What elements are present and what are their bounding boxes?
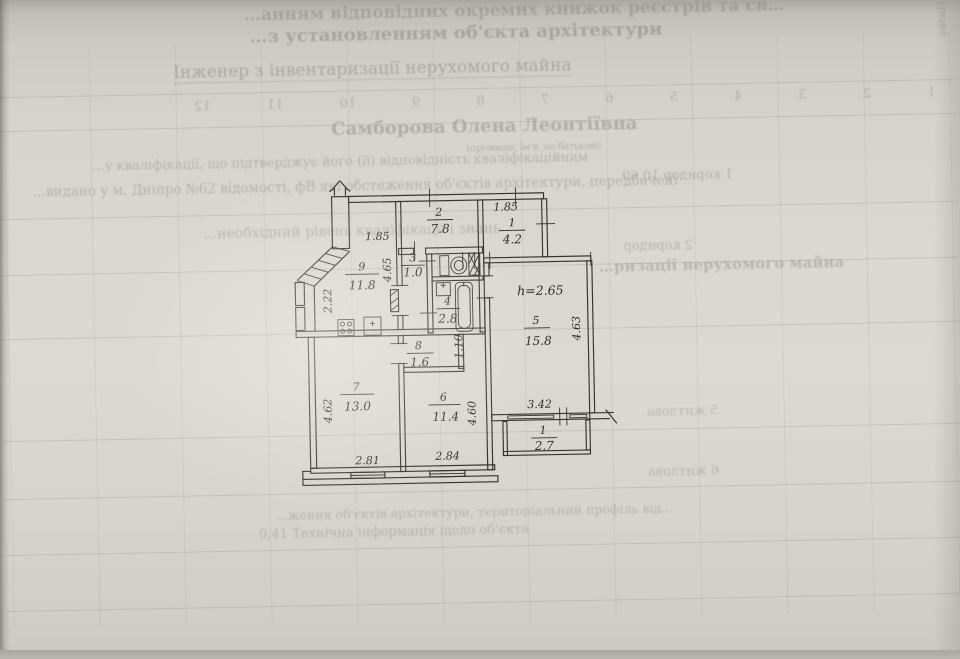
- balcony-1-area: 2.7: [534, 439, 555, 453]
- balcony-1-number: 1: [539, 424, 546, 437]
- scanned-document-page: { "document": { "bleed": { "top_line_1":…: [0, 0, 960, 650]
- photo-left-edge-shadow: [0, 0, 10, 650]
- dim-balcony-width: 3.42: [527, 398, 552, 411]
- dim-room5-height: 4.63: [570, 316, 583, 342]
- bleed-table-row-koridor-2: 2 коридор: [623, 238, 693, 254]
- dim-top-right: 1.85: [493, 200, 518, 213]
- bleed-table-row-zhytlova-5: 5 житлова: [647, 403, 719, 419]
- loggia-1-number: 1: [508, 216, 515, 229]
- bleed-table-row-zhytlova-6: 6 житлова: [648, 463, 720, 479]
- photo-right-edge-shadow: [934, 0, 960, 650]
- bleed-table-row-koridor-1: 1 коридор 10,69: [622, 167, 733, 184]
- photo-light-reflection: [120, 180, 540, 510]
- loggia-1-area: 4.2: [502, 232, 522, 246]
